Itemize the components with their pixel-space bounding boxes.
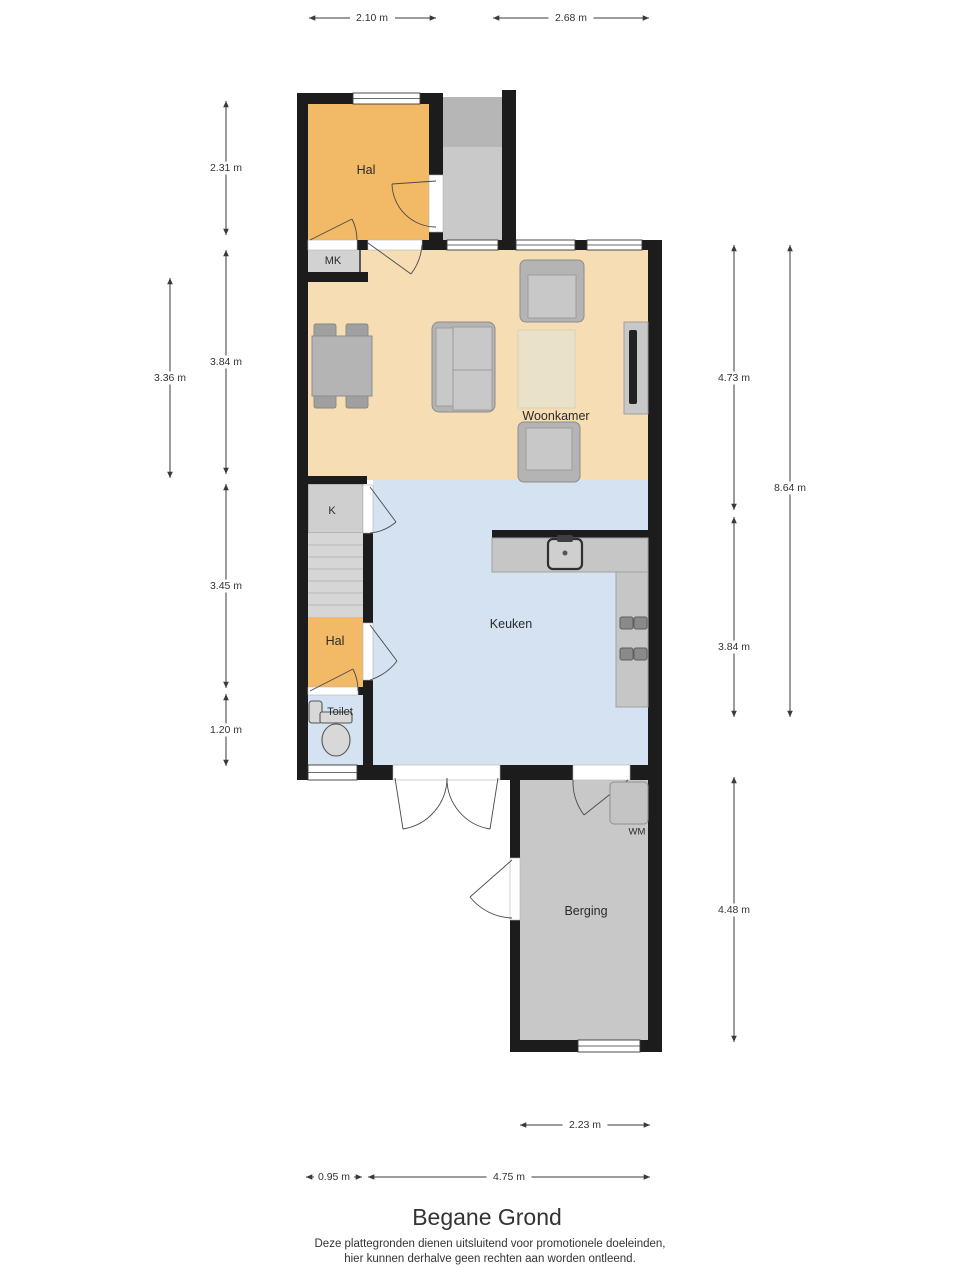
armchair-top — [520, 260, 584, 322]
dim-right-2: 3.84 m — [712, 517, 757, 717]
dim-label: 4.48 m — [718, 904, 750, 916]
dim-label: 4.73 m — [718, 372, 750, 384]
dim-bottom-2: 0.95 m — [306, 1171, 362, 1184]
tv-screen — [629, 330, 637, 404]
mk-door-opening — [308, 240, 357, 250]
label-keuken: Keuken — [490, 617, 532, 631]
window — [308, 765, 357, 780]
porch-upper — [443, 97, 502, 147]
dim-top-2: 2.68 m — [493, 12, 649, 25]
dim-bottom-1: 2.23 m — [520, 1119, 650, 1132]
dim-label: 4.75 m — [493, 1171, 525, 1183]
porch-lower — [443, 147, 502, 240]
berging-side-door-opening — [510, 858, 520, 920]
window — [353, 93, 420, 104]
washing-machine — [610, 782, 648, 824]
label-hal-entrance: Hal — [357, 163, 376, 177]
dim-top-1: 2.10 m — [309, 12, 436, 25]
label-k: K — [328, 505, 336, 517]
dim-label: 2.68 m — [555, 12, 587, 24]
dim-left-1: 2.31 m — [204, 101, 249, 235]
dim-left-4: 1.20 m — [204, 694, 249, 766]
disclaimer-line2: hier kunnen derhalve geen rechten aan wo… — [344, 1253, 636, 1265]
window — [587, 240, 642, 250]
label-berging: Berging — [564, 904, 607, 918]
dim-right-3: 4.48 m — [712, 777, 757, 1042]
dining-set — [312, 324, 372, 408]
page-title: Begane Grond — [412, 1204, 562, 1230]
window — [516, 240, 575, 250]
floorplan-page: 2.10 m 2.68 m 2.31 m 3.84 m 3.36 m 3.45 … — [0, 0, 960, 1280]
label-hal-small: Hal — [326, 634, 345, 648]
dim-label: 1.20 m — [210, 724, 242, 736]
dim-label: 3.84 m — [210, 356, 242, 368]
front-door-opening — [429, 175, 443, 232]
dim-label: 3.45 m — [210, 580, 242, 592]
dim-label: 3.84 m — [718, 641, 750, 653]
dim-label: 8.64 m — [774, 482, 806, 494]
armchair-bottom — [518, 422, 580, 482]
dim-left-2: 3.84 m — [204, 250, 249, 474]
dim-right-outer: 8.64 m — [768, 245, 813, 717]
k-door-opening — [363, 485, 373, 533]
dim-label: 2.31 m — [210, 162, 242, 174]
label-toilet: Toilet — [327, 706, 353, 718]
label-wm: WM — [629, 827, 646, 838]
disclaimer-line1: Deze plattegronden dienen uitsluitend vo… — [315, 1238, 666, 1250]
window — [447, 240, 498, 250]
dim-right-1: 4.73 m — [712, 245, 757, 510]
dim-label: 2.23 m — [569, 1119, 601, 1131]
dim-bottom-3: 4.75 m — [368, 1171, 650, 1184]
window — [578, 1040, 640, 1052]
garden-doors-opening — [393, 765, 500, 780]
label-woonkamer: Woonkamer — [522, 409, 589, 423]
dim-label: 2.10 m — [356, 12, 388, 24]
dim-left-inner: 3.36 m — [148, 278, 193, 478]
kitchen-sink — [548, 535, 582, 569]
floorplan-canvas: 2.10 m 2.68 m 2.31 m 3.84 m 3.36 m 3.45 … — [0, 0, 960, 1280]
tv-unit — [624, 322, 648, 414]
dim-left-3: 3.45 m — [204, 484, 249, 688]
hal-kitchen-door-opening — [363, 623, 373, 680]
room-hal-small — [308, 617, 363, 687]
rug — [518, 330, 575, 408]
dim-label: 0.95 m — [318, 1171, 350, 1183]
sofa — [432, 322, 495, 412]
berging-top-door-opening — [573, 765, 630, 780]
dim-label: 3.36 m — [154, 372, 186, 384]
label-mk: MK — [325, 255, 342, 267]
